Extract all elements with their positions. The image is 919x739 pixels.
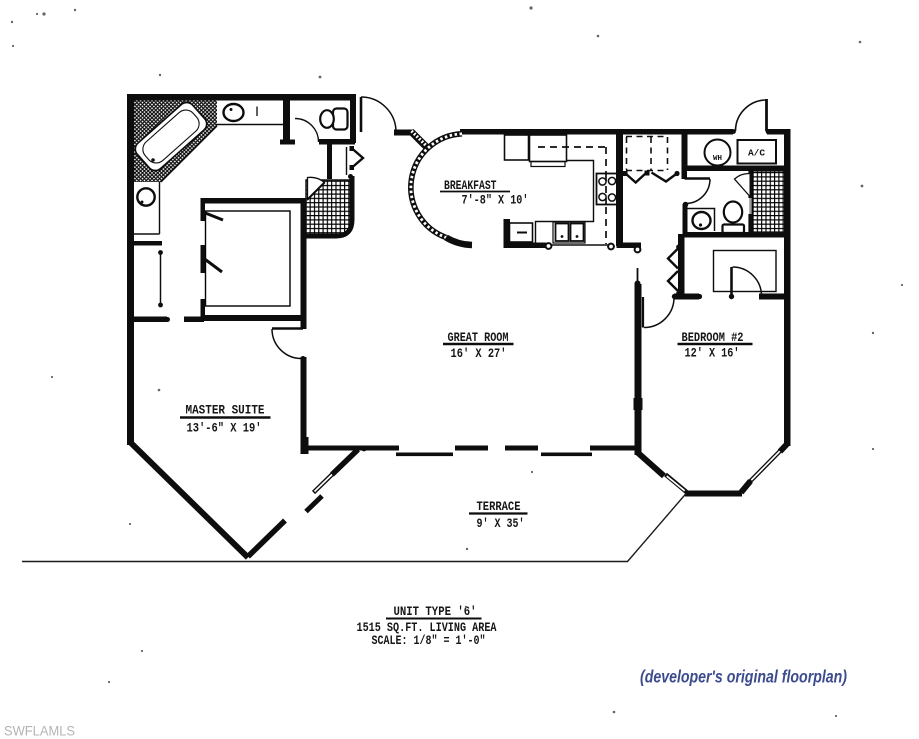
svg-text:BEDROOM #2: BEDROOM #2: [682, 330, 744, 345]
svg-text:9' X 35': 9' X 35': [477, 516, 525, 531]
svg-text:MASTER SUITE: MASTER SUITE: [186, 403, 265, 418]
svg-text:12' X 16': 12' X 16': [685, 346, 740, 361]
svg-text:SWFLAMLS: SWFLAMLS: [4, 723, 75, 739]
svg-text:16' X 27': 16' X 27': [451, 346, 507, 361]
svg-text:UNIT TYPE '6': UNIT TYPE '6': [394, 604, 477, 619]
svg-text:BREAKFAST: BREAKFAST: [444, 178, 497, 193]
svg-text:13'-6" X 19': 13'-6" X 19': [187, 421, 262, 436]
svg-text:7'-8" X 10': 7'-8" X 10': [462, 193, 529, 208]
svg-text:(developer's original floorpla: (developer's original floorplan): [640, 667, 847, 687]
svg-text:SCALE: 1/8" = 1'-0": SCALE: 1/8" = 1'-0": [372, 633, 486, 648]
svg-text:A/C: A/C: [748, 148, 765, 159]
svg-text:GREAT ROOM: GREAT ROOM: [448, 330, 509, 345]
svg-text:WH: WH: [713, 155, 722, 163]
svg-text:TERRACE: TERRACE: [477, 499, 521, 514]
